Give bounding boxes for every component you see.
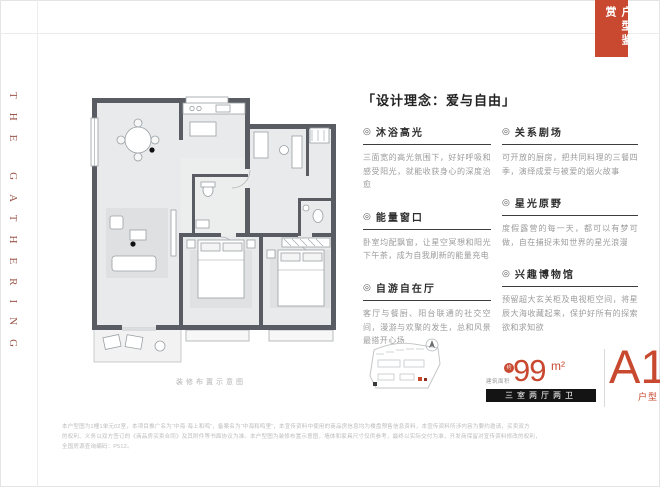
- feature-body: 卧室均配飘窗，让星空冥想和阳光下午茶，成为自我刷新的能量充电: [363, 236, 491, 263]
- feature-section: ◎兴趣博物馆 预留超大玄关柜及电视柜空间，将星辰大海收藏起来，保护好所有的探索欲…: [502, 266, 638, 334]
- site-plan-svg: [362, 336, 448, 400]
- area-value: 99: [513, 353, 545, 389]
- circle-bullet-icon: ◎: [363, 126, 373, 137]
- feature-heading: 沐浴高光: [376, 124, 424, 139]
- feature-heading: 自游自在厅: [376, 280, 436, 295]
- circle-bullet-icon: ◎: [502, 126, 512, 137]
- brand-vertical-text: THE GATHERING: [7, 92, 19, 361]
- banner-title: 户型鉴赏: [602, 6, 634, 57]
- feature-body: 度假露营的每一天，都可以有梦可做，自在捕捉未知世界的星光浪漫: [502, 222, 638, 249]
- design-concept-title: 「设计理念：爱与自由」: [362, 90, 516, 109]
- circle-bullet-icon: ◎: [502, 268, 512, 279]
- horizontal-divider: [0, 33, 660, 34]
- disclaimer-line: 本户型图为1幢1单元02室，本项目推广名为“中海·海上和鸣”，备案名为“中海和鸣…: [62, 423, 602, 433]
- feature-heading: 兴趣博物馆: [515, 266, 575, 281]
- vertical-divider: [37, 0, 38, 487]
- floor-plan-caption: 装修布置示意图: [86, 377, 336, 387]
- disclaimer-line: 的权利、义务以双方签订的《商品房买卖合同》及其附件等书面协议为准。本户型图为装修…: [62, 433, 602, 443]
- feature-body: 预留超大玄关柜及电视柜空间，将星辰大海收藏起来，保护好所有的探索欲和求知欲: [502, 293, 638, 334]
- feature-section: ◎能量窗口 卧室均配飘窗，让星空冥想和阳光下午茶，成为自我刷新的能量充电: [363, 209, 491, 263]
- disclaimer-line: 全国房源查询编码：P512。: [62, 443, 602, 453]
- floor-plan-svg: [86, 88, 336, 370]
- unit-name: A1: [609, 339, 660, 394]
- feature-section: ◎关系剧场 可开放的厨房，把共同料理的三餐四季，演绎成爱与被爱的烟火故事: [502, 124, 638, 178]
- floor-plan: [86, 88, 336, 370]
- disclaimer: 本户型图为1幢1单元02室，本项目推广名为“中海·海上和鸣”，备案名为“中海和鸣…: [62, 423, 602, 453]
- site-plan-sketch: [362, 336, 448, 400]
- circle-bullet-icon: ◎: [363, 282, 373, 293]
- circle-bullet-icon: ◎: [363, 211, 373, 222]
- feature-column-left: ◎沐浴高光 三面宽的高光氛围下，好好呼吸和感受阳光，就能收获身心的深度治愈 ◎能…: [363, 124, 491, 365]
- feature-body: 可开放的厨房，把共同料理的三餐四季，演绎成爱与被爱的烟火故事: [502, 151, 638, 178]
- layout-tag: 三室两厅两卫: [486, 389, 596, 402]
- feature-heading: 关系剧场: [515, 124, 563, 139]
- feature-section: ◎星光原野 度假露营的每一天，都可以有梦可做，自在捕捉未知世界的星光浪漫: [502, 195, 638, 249]
- circle-bullet-icon: ◎: [502, 197, 512, 208]
- feature-column-right: ◎关系剧场 可开放的厨房，把共同料理的三餐四季，演绎成爱与被爱的烟火故事 ◎星光…: [502, 124, 638, 351]
- area-unit: m²: [551, 359, 565, 373]
- feature-heading: 星光原野: [515, 195, 563, 210]
- feature-heading: 能量窗口: [376, 209, 424, 224]
- area-label: 建筑面积: [486, 377, 510, 385]
- feature-section: ◎沐浴高光 三面宽的高光氛围下，好好呼吸和感受阳光，就能收获身心的深度治愈: [363, 124, 491, 192]
- feature-body: 三面宽的高光氛围下，好好呼吸和感受阳光，就能收获身心的深度治愈: [363, 151, 491, 192]
- unit-suffix: 户型: [638, 390, 658, 403]
- banner-subtitle: THE GATHERING: [635, 5, 645, 57]
- category-banner: 户型鉴赏 THE GATHERING: [595, 0, 628, 57]
- unit-divider: [604, 349, 605, 407]
